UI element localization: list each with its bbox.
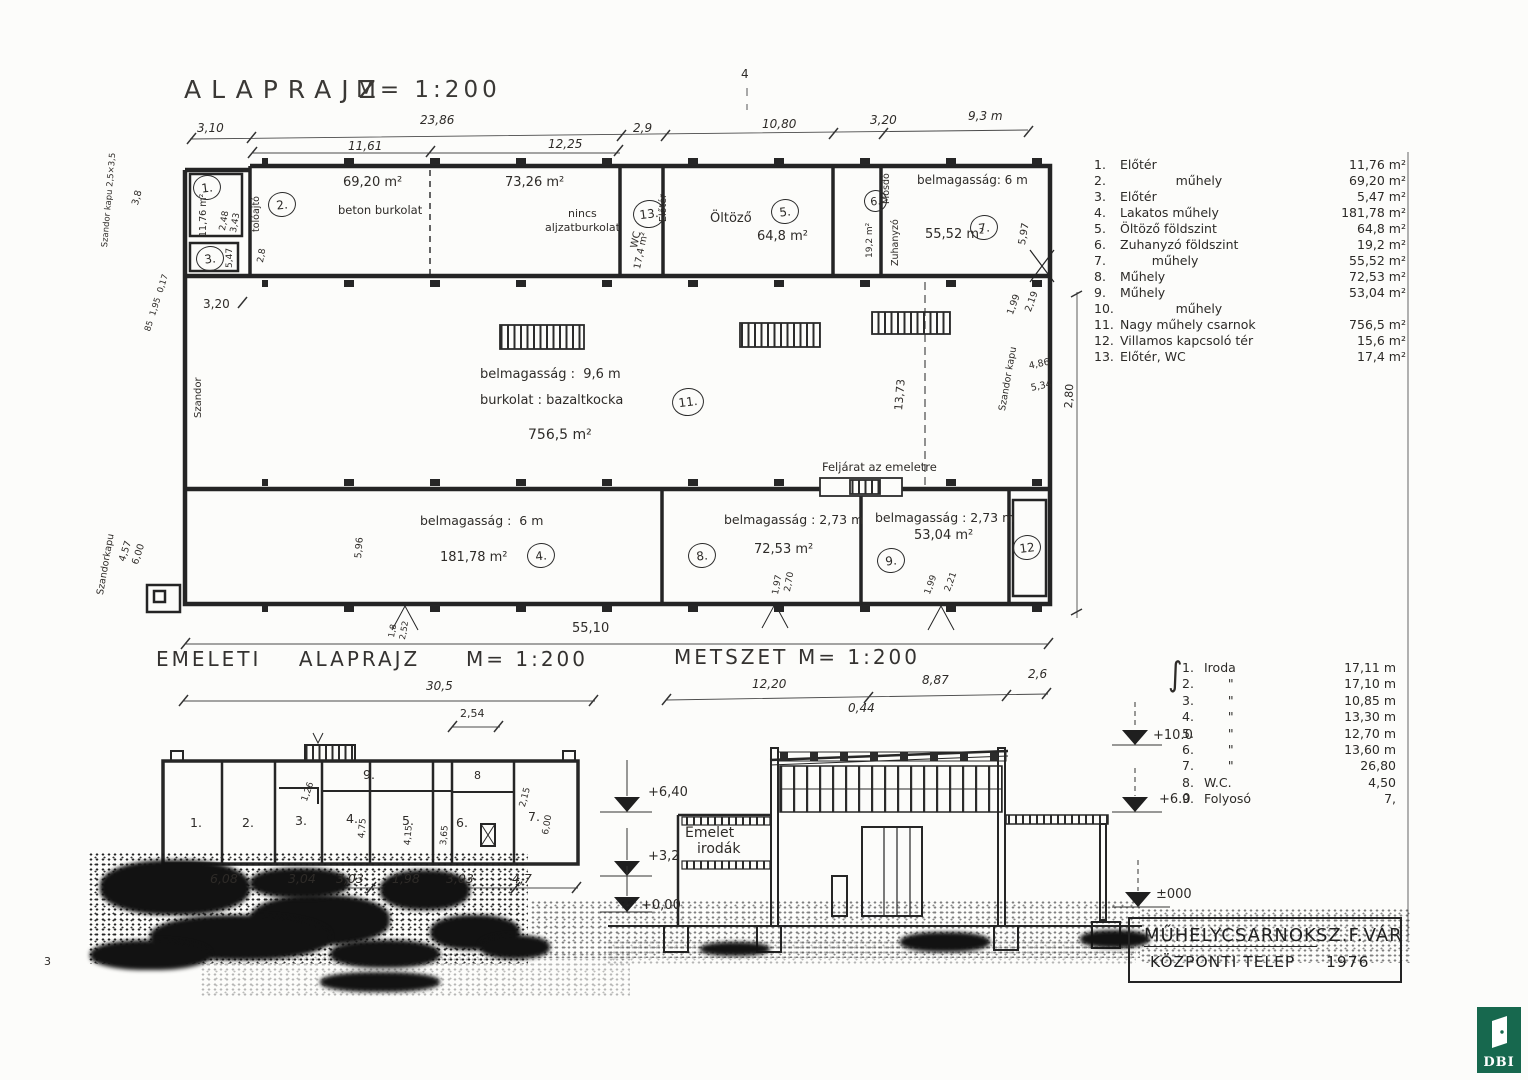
room-legend-name: Műhely — [1120, 285, 1318, 301]
room-note: aljzatburkolat — [545, 222, 620, 234]
office-legend-value: 17,10 m — [1320, 676, 1396, 692]
room-note: belmagasság : 6 m — [420, 514, 543, 528]
room-legend-row: 12. Villamos kapcsoló tér 15,6 m² — [1094, 333, 1406, 349]
room-legend-row: 10. műhely — [1094, 301, 1406, 317]
scan-noise-band — [606, 940, 1136, 965]
title-block-site: KÖZPONTI TELEP — [1150, 953, 1295, 971]
dim-label: 2,54 — [460, 708, 485, 720]
scan-blob — [700, 942, 770, 956]
dim-label: 2,80 — [1063, 384, 1076, 409]
office-legend-number: 9. — [1182, 791, 1204, 807]
dim-label: 3,03 — [336, 872, 364, 886]
room-legend-row: 2. műhely 69,20 m² — [1094, 173, 1406, 189]
room-legend-name: Zuhanyzó földszint — [1120, 237, 1318, 253]
upper-room-3: 3. — [295, 814, 307, 828]
hall-area: 756,5 m² — [528, 428, 592, 443]
office-legend-number: 1. — [1182, 660, 1204, 676]
room-legend-number: 9. — [1094, 285, 1120, 301]
office-legend-name: W.C. — [1204, 775, 1320, 791]
room-legend-number: 7. — [1094, 253, 1120, 269]
room-legend-number: 4. — [1094, 205, 1120, 221]
room-name: Előtér — [659, 194, 669, 222]
room-area: 69,20 m² — [343, 176, 402, 190]
office-legend-value: 7, — [1320, 791, 1396, 807]
office-legend-number: 4. — [1182, 709, 1204, 725]
room-legend-row: 8. Műhely 72,53 m² — [1094, 269, 1406, 285]
room-note: nincs — [568, 208, 597, 220]
room-legend-number: 13. — [1094, 349, 1120, 365]
door-label: tolóajtó — [252, 196, 262, 232]
level-label: ±000 — [1156, 888, 1192, 902]
room-legend-number: 11. — [1094, 317, 1120, 333]
room-legend-name: Öltöző földszint — [1120, 221, 1318, 237]
ground-plan-scale: M= 1:200 — [356, 78, 501, 103]
room-name: Öltöző — [710, 212, 752, 226]
room-legend-row: 3. Előtér 5,47 m² — [1094, 189, 1406, 205]
office-legend-name: " — [1204, 676, 1320, 692]
dim-label: 12,25 — [548, 138, 582, 151]
office-legend-value: 17,11 m — [1320, 660, 1396, 676]
room-area: 72,53 m² — [754, 543, 813, 557]
office-legend-value: 13,30 m — [1320, 709, 1396, 725]
section-title: METSZET — [674, 646, 788, 668]
title-block-year: 1976 — [1326, 953, 1369, 971]
room-area: 11,76 m² — [199, 194, 209, 237]
upper-room-7: 7. — [528, 810, 540, 824]
title-block: MŰHELYCSARNOK SZ.F.VÁR KÖZPONTI TELEP 19… — [1128, 917, 1402, 983]
scan-blob — [100, 860, 250, 915]
room-legend-number: 8. — [1094, 269, 1120, 285]
room-legend-row: 11. Nagy műhely csarnok 756,5 m² — [1094, 317, 1406, 333]
office-legend-name: " — [1204, 758, 1320, 774]
level-label: +0,00 — [641, 899, 681, 913]
upper-room-9: 9. — [363, 768, 375, 782]
room-legend-row: 4. Lakatos műhely 181,78 m² — [1094, 205, 1406, 221]
office-legend-name: " — [1204, 726, 1320, 742]
dbi-logo-text: DBI — [1483, 1055, 1514, 1070]
room-legend-area: 72,53 m² — [1318, 269, 1406, 285]
dim-label: 1,98 — [392, 872, 420, 886]
dim-label: 3,10 — [197, 122, 224, 135]
room-legend-name: Lakatos műhely — [1120, 205, 1318, 221]
room-legend-area: 5,47 m² — [1318, 189, 1406, 205]
office-legend-row: 2. " 17,10 m — [1182, 676, 1396, 692]
dim-label-total: 55,10 — [572, 622, 609, 636]
office-legend-row: 7. " 26,80 — [1182, 758, 1396, 774]
office-legend-value: 10,85 m — [1320, 693, 1396, 709]
gate-label: Szandor — [193, 377, 204, 418]
dim-label: 4,7 — [512, 872, 532, 886]
upper-room-6: 6. — [456, 816, 468, 830]
office-legend-name: " — [1204, 742, 1320, 758]
room-legend-row: 1. Előtér 11,76 m² — [1094, 157, 1406, 173]
room-note: beton burkolat — [338, 204, 422, 217]
office-legend-number: 3. — [1182, 693, 1204, 709]
page-number: 3 — [44, 956, 51, 968]
stair-label: Feljárat az emeletre — [822, 461, 937, 474]
room-legend-number: 6. — [1094, 237, 1120, 253]
scan-blob — [320, 972, 440, 992]
dim-label: 4,75 — [358, 818, 370, 839]
office-legend-row: 4. " 13,30 m — [1182, 709, 1396, 725]
room-legend-area: 53,04 m² — [1318, 285, 1406, 301]
room-legend-number: 10. — [1094, 301, 1120, 317]
room-legend-name: Villamos kapcsoló tér — [1120, 333, 1318, 349]
room-name: Zuhanyzó — [891, 219, 901, 266]
hall-floor-note: burkolat : bazaltkocka — [480, 394, 623, 408]
dim-label: 0,44 — [848, 702, 875, 715]
dim-label: 3,04 — [288, 872, 316, 886]
title-block-project: MŰHELYCSARNOK — [1144, 925, 1317, 947]
room-legend-number: 12. — [1094, 333, 1120, 349]
room-legend-name: műhely — [1120, 173, 1318, 189]
room-legend-name: Előtér, WC — [1120, 349, 1318, 365]
upper-room-4: 4. — [346, 812, 358, 826]
office-legend-name: Folyosó — [1204, 791, 1320, 807]
dim-label: 23,86 — [420, 114, 454, 127]
room-area: 53,04 m² — [914, 529, 973, 543]
scan-blob — [330, 940, 440, 968]
room-legend-area: 69,20 m² — [1318, 173, 1406, 189]
room-area: 19,2 m² — [866, 223, 876, 258]
room-legend-name: műhely — [1120, 253, 1318, 269]
room-legend-row: 5. Öltöző földszint 64,8 m² — [1094, 221, 1406, 237]
scanned-floorplan-sheet: ALAPRAJZ M= 1:200 EMELETI ALAPRAJZ M= 1:… — [0, 0, 1528, 1080]
room-legend-name: Előtér — [1120, 157, 1318, 173]
room-legend-area: 15,6 m² — [1318, 333, 1406, 349]
room-legend-name: Nagy műhely csarnok — [1120, 317, 1318, 333]
room-legend: 1. Előtér 11,76 m² 2. műhely 69,20 m² 3.… — [1094, 157, 1406, 365]
dbi-logo: DBI — [1477, 1007, 1521, 1073]
level-label: +3,2 — [648, 850, 680, 864]
dim-label: 4,15 — [404, 825, 416, 846]
office-legend-name: " — [1204, 693, 1320, 709]
dim-label: 9,3 m — [968, 110, 1003, 123]
room-legend-name: Előtér — [1120, 189, 1318, 205]
office-legend-row: 5. " 12,70 m — [1182, 726, 1396, 742]
room-note: belmagasság: 6 m — [917, 174, 1028, 187]
room-legend-area: 17,4 m² — [1318, 349, 1406, 365]
upper-room-2: 2. — [242, 816, 254, 830]
scan-blob — [480, 935, 550, 959]
room-legend-name: műhely — [1120, 301, 1318, 317]
dim-label: 2,6 — [1028, 668, 1047, 681]
room-legend-row: 7. műhely 55,52 m² — [1094, 253, 1406, 269]
room-legend-row: 6. Zuhanyzó földszint 19,2 m² — [1094, 237, 1406, 253]
level-label: +6,40 — [648, 786, 688, 800]
hall-height-note: belmagasság : 9,6 m — [480, 368, 621, 382]
room-legend-area: 181,78 m² — [1318, 205, 1406, 221]
room-legend-area: 11,76 m² — [1318, 157, 1406, 173]
office-legend-number: 6. — [1182, 742, 1204, 758]
dim-label: 6,08 — [210, 872, 238, 886]
office-legend-row: 9. Folyosó 7, — [1182, 791, 1396, 807]
fold-mark: 4 — [741, 68, 749, 81]
dim-label: 12,20 — [752, 678, 786, 691]
door-icon — [1477, 1012, 1521, 1054]
office-legend-number: 2. — [1182, 676, 1204, 692]
office-legend-name: " — [1204, 709, 1320, 725]
title-block-city: SZ.F.VÁR — [1316, 925, 1403, 946]
dim-label: 10,80 — [762, 118, 796, 131]
room-legend-number: 3. — [1094, 189, 1120, 205]
upper-plan-title: EMELETI ALAPRAJZ — [156, 648, 420, 670]
room-legend-number: 5. — [1094, 221, 1120, 237]
section-note: Emelet — [685, 826, 734, 841]
room-legend-area: 64,8 m² — [1318, 221, 1406, 237]
dim-label: 3,20 — [203, 298, 230, 311]
office-legend-number: 7. — [1182, 758, 1204, 774]
scan-blob — [90, 940, 210, 970]
room-legend-number: 2. — [1094, 173, 1120, 189]
office-legend-value: 4,50 — [1320, 775, 1396, 791]
room-legend-area: 19,2 m² — [1318, 237, 1406, 253]
dim-label: 11,61 — [348, 140, 382, 153]
dim-label: 30,5 — [426, 680, 453, 693]
office-legend-number: 5. — [1182, 726, 1204, 742]
legend-brace: ∫ — [1168, 657, 1183, 694]
dim-label: 5,96 — [354, 537, 366, 559]
dim-label: 3,65 — [440, 825, 452, 846]
office-legend-name: Iroda — [1204, 660, 1320, 676]
office-legend: 1. Iroda 17,11 m 2. " 17,10 m 3. " 10,85… — [1182, 660, 1396, 808]
dim-label: 5,47 — [226, 248, 236, 268]
room-note: belmagasság : 2,73 m — [724, 513, 863, 527]
dim-label: 2,9 — [633, 122, 652, 135]
dim-label: 8,87 — [922, 674, 949, 687]
room-area: 181,78 m² — [440, 551, 508, 565]
scan-blob — [900, 932, 990, 952]
office-legend-value: 26,80 — [1320, 758, 1396, 774]
office-legend-row: 3. " 10,85 m — [1182, 693, 1396, 709]
office-legend-row: 1. Iroda 17,11 m — [1182, 660, 1396, 676]
dim-label: 3,20 — [870, 114, 897, 127]
room-legend-row: 9. Műhely 53,04 m² — [1094, 285, 1406, 301]
room-legend-area: 756,5 m² — [1318, 317, 1406, 333]
office-legend-value: 13,60 m — [1320, 742, 1396, 758]
section-scale: M= 1:200 — [798, 646, 920, 668]
office-legend-number: 8. — [1182, 775, 1204, 791]
room-area: 73,26 m² — [505, 176, 564, 190]
room-name: Mosdó — [882, 173, 892, 204]
office-legend-row: 8. W.C. 4,50 — [1182, 775, 1396, 791]
office-legend-row: 6. " 13,60 m — [1182, 742, 1396, 758]
upper-room-8: 8 — [474, 770, 481, 782]
room-legend-row: 13. Előtér, WC 17,4 m² — [1094, 349, 1406, 365]
room-legend-area: 55,52 m² — [1318, 253, 1406, 269]
room-legend-number: 1. — [1094, 157, 1120, 173]
upper-room-1: 1. — [190, 816, 202, 830]
room-note: belmagasság : 2,73 m — [875, 511, 1014, 525]
section-note: irodák — [697, 842, 740, 857]
office-legend-value: 12,70 m — [1320, 726, 1396, 742]
room-legend-name: Műhely — [1120, 269, 1318, 285]
upper-plan-scale: M= 1:200 — [466, 648, 588, 670]
room-area: 64,8 m² — [757, 230, 808, 244]
dim-label: 3,03 — [446, 872, 474, 886]
